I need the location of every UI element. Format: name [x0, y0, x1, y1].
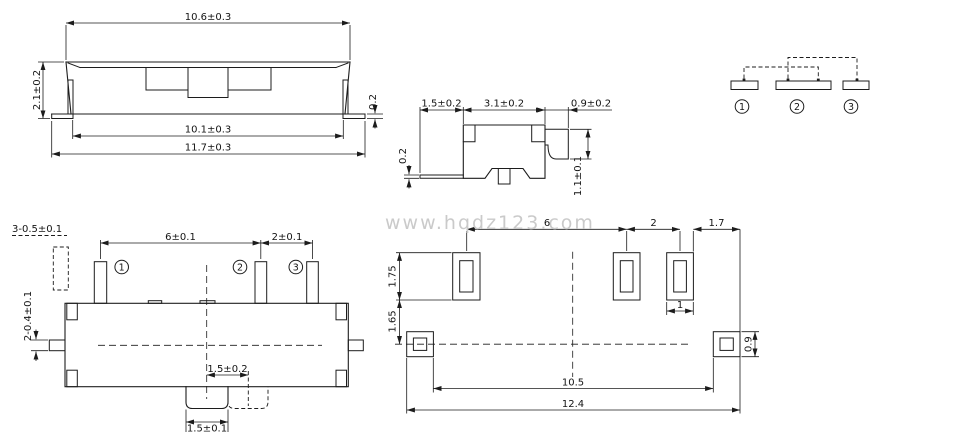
front-contact-block-center [188, 68, 228, 98]
front-contact-block-left [146, 68, 188, 91]
dim-label: 1.5±0.2 [207, 364, 247, 375]
dim-foot-thickness: 0.2 [367, 94, 383, 128]
dim-pad-width: 1 [667, 300, 694, 315]
dim-label: 1.1±0.1 [573, 156, 584, 196]
dim-side-pad-height: 0.9 [742, 332, 760, 357]
top-terminal-labels: 1 2 3 [115, 260, 303, 274]
dim-label: 1.75 [388, 265, 399, 287]
dim-label: 10.1±0.3 [185, 125, 232, 136]
pcb-layout: 6 2 1.7 1.75 1.65 1 0.9 [388, 218, 760, 414]
dim-label: 3.1±0.2 [484, 99, 524, 110]
pcb-pads [407, 253, 740, 357]
end-foot-strip [420, 175, 463, 178]
dim-height: 2.1±0.2 [32, 62, 64, 119]
top-pin-2 [255, 262, 267, 304]
dim-pin-spec: 3-0.5±0.1 [12, 224, 67, 236]
top-pin-1 [94, 262, 106, 304]
dim-label: 1.5±0.2 [421, 99, 461, 110]
dim-label: 1.65 [388, 310, 399, 332]
dim-pin-span: 10.1±0.3 [73, 120, 344, 139]
dim-label: 2±0.1 [272, 232, 303, 243]
end-bottom-boss [498, 169, 510, 185]
drawing-canvas: 10.6±0.3 2.1±0.2 0.2 10.1±0.3 11.7±0.3 [0, 0, 965, 446]
dim-label: 3-0.5±0.1 [12, 224, 62, 235]
terminal-number: 3 [848, 102, 854, 113]
dim-label: 0.2 [398, 148, 409, 164]
dim-pad-gap: 1.65 [388, 300, 400, 344]
top-side-pin-right [348, 340, 363, 351]
end-view: 1.5±0.2 3.1±0.2 0.9±0.2 0.2 1.1±0.1 [398, 99, 612, 197]
schematic-bridge-2-3 [788, 58, 857, 79]
dim-label: 10.5 [562, 378, 584, 389]
dim-cover-width: 10.6±0.3 [66, 12, 350, 60]
dim-label: 6±0.1 [165, 232, 196, 243]
dim-side-pin-spec: 2-0.4±0.1 [23, 291, 48, 361]
front-left-foot [52, 114, 73, 119]
dim-label: 1.5±0.1 [187, 424, 227, 435]
front-contact-block-right [228, 68, 271, 91]
schematic-terminal-labels: 1 2 3 [735, 100, 858, 114]
terminal-number: 2 [794, 102, 800, 113]
dim-inner-span: 10.5 [433, 358, 713, 393]
technical-drawing: 10.6±0.3 2.1±0.2 0.2 10.1±0.3 11.7±0.3 [0, 0, 965, 446]
top-side-pin-left [49, 340, 65, 351]
dim-label: 2.1±0.2 [32, 70, 43, 110]
dim-label: 10.6±0.3 [185, 12, 232, 23]
schematic-pad-2 [776, 81, 831, 90]
dim-pitch-2-3: 2±0.1 [261, 232, 313, 259]
watermark: www.hqdz123.com [385, 212, 595, 234]
dim-label: 0.9±0.2 [571, 99, 611, 110]
terminal-number: 1 [739, 102, 745, 113]
schematic-pad-3 [843, 81, 869, 90]
front-view-body [52, 62, 365, 119]
front-right-foot [343, 114, 365, 119]
dim-label: 0.9 [744, 336, 755, 352]
dim-label: 0.2 [368, 94, 379, 110]
terminal-schematic: 1 2 3 [731, 58, 869, 114]
dim-pad-height: 1.75 [388, 253, 452, 300]
front-view: 10.6±0.3 2.1±0.2 0.2 10.1±0.3 11.7±0.3 [32, 12, 383, 158]
top-view: 3-0.5±0.1 6±0.1 2±0.1 2-0.4±0.1 1.5±0.2 [12, 224, 363, 435]
schematic-pad-1 [731, 81, 758, 90]
end-gullwing-pin [545, 129, 568, 159]
dim-end-pin-height: 1.1±0.1 [570, 129, 592, 196]
dim-label: 1.7 [709, 218, 725, 229]
pad-terminal-3 [667, 253, 694, 300]
schematic-bridge-1-2 [744, 67, 818, 79]
phantom-pin [53, 247, 68, 290]
dim-label: 11.7±0.3 [185, 143, 232, 154]
dim-label: 2 [650, 218, 656, 229]
terminal-number: 3 [293, 263, 299, 274]
pad-terminal-2 [613, 253, 640, 300]
dim-end-foot-thickness: 0.2 [398, 148, 419, 188]
dim-label: 12.4 [562, 399, 584, 410]
terminal-number: 2 [237, 263, 243, 274]
terminal-number: 1 [119, 263, 125, 274]
dim-label: 2-0.4±0.1 [23, 291, 34, 341]
pad-side-right [713, 332, 740, 357]
dim-label: 1 [677, 300, 683, 311]
top-pin-3 [307, 262, 319, 304]
pad-terminal-1 [453, 253, 480, 300]
end-view-body [420, 125, 568, 184]
dim-pitch-1-2: 6±0.1 [101, 232, 261, 259]
top-view-body [49, 247, 363, 409]
dim-knob-width: 1.5±0.1 [186, 410, 228, 435]
